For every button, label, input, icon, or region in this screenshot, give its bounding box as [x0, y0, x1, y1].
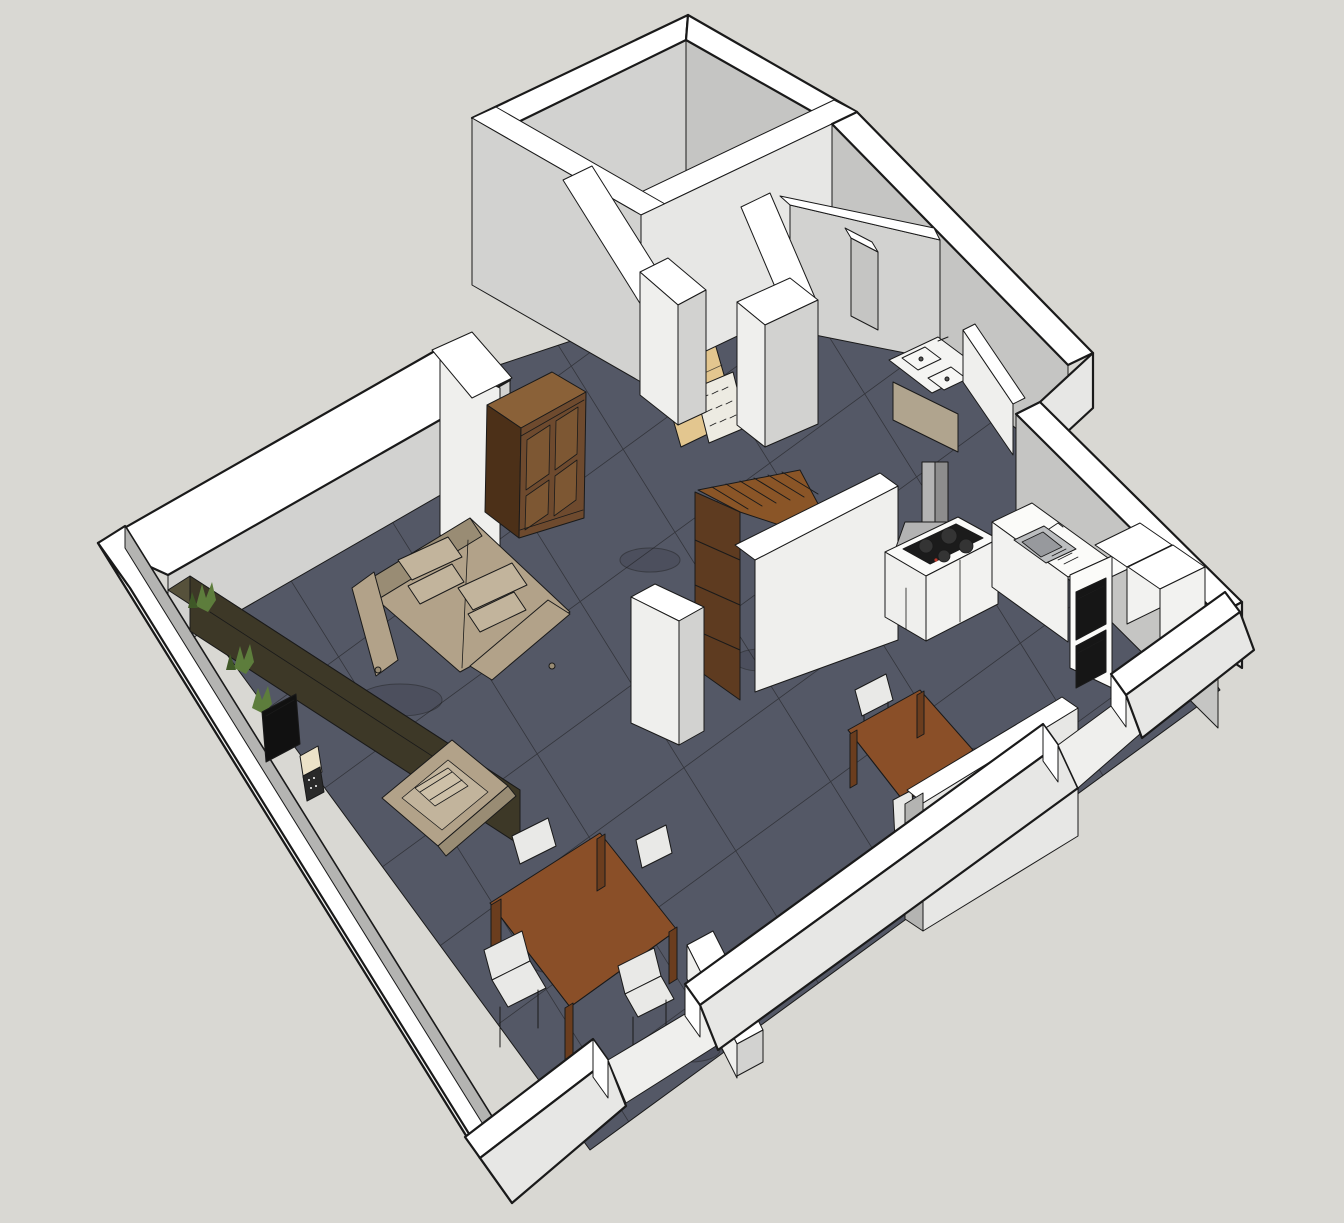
table-leg: [597, 834, 605, 891]
table-leg: [669, 927, 677, 984]
sink-drain: [919, 357, 923, 361]
keypad-dot: [310, 787, 312, 789]
hall-east-pillar-se-face[interactable]: [765, 300, 818, 447]
range-hood-chimney[interactable]: [922, 462, 935, 522]
burner: [959, 539, 973, 553]
pillar-se-face[interactable]: [679, 607, 704, 745]
burner: [941, 528, 957, 544]
cooktop-indicator-light: [934, 558, 937, 561]
floor-stain: [620, 548, 680, 572]
sofa-leg: [375, 667, 381, 673]
sofa-leg: [549, 663, 555, 669]
keypad-dot: [308, 779, 310, 781]
pillar-sw-face[interactable]: [631, 597, 679, 745]
sink-drain: [945, 377, 949, 381]
keypad-dot: [315, 785, 317, 787]
center-pillar[interactable]: [631, 584, 704, 745]
hall-pillar-south-face[interactable]: [678, 290, 706, 425]
3d-floorplan-viewport[interactable]: [0, 0, 1344, 1223]
keypad-dot: [313, 777, 315, 779]
burner: [938, 550, 950, 562]
bathroom-stub-wall-face[interactable]: [851, 238, 878, 330]
range-hood-chimney[interactable]: [935, 462, 948, 522]
hall-east-pillar-sw-face[interactable]: [737, 302, 765, 447]
table-leg: [850, 730, 857, 788]
burner: [919, 539, 933, 553]
table-leg: [917, 691, 924, 738]
